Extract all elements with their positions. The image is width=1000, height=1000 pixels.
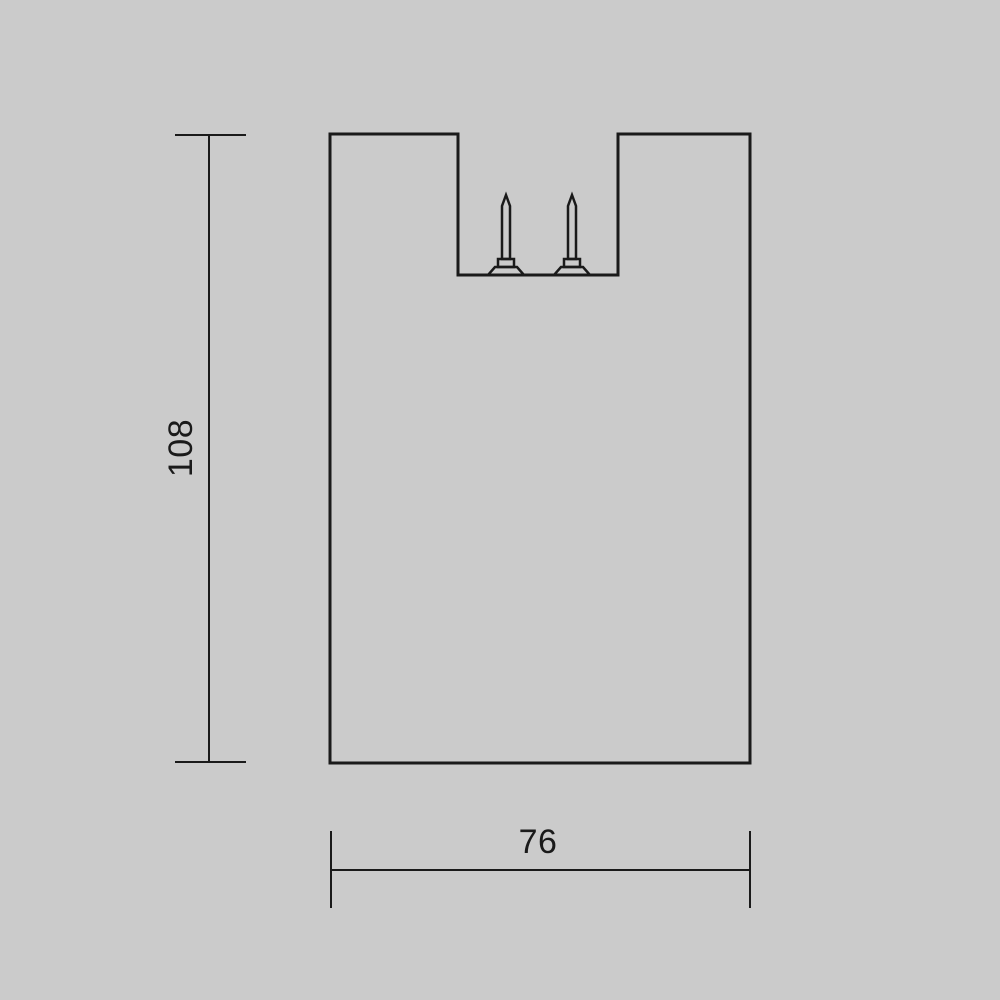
drawing-canvas: 108 76 bbox=[0, 0, 1000, 1000]
drawing-background bbox=[0, 0, 1000, 1000]
width-dimension-label: 76 bbox=[519, 823, 558, 861]
height-dimension-label: 108 bbox=[162, 419, 200, 477]
technical-drawing: 108 76 bbox=[0, 0, 1000, 1000]
